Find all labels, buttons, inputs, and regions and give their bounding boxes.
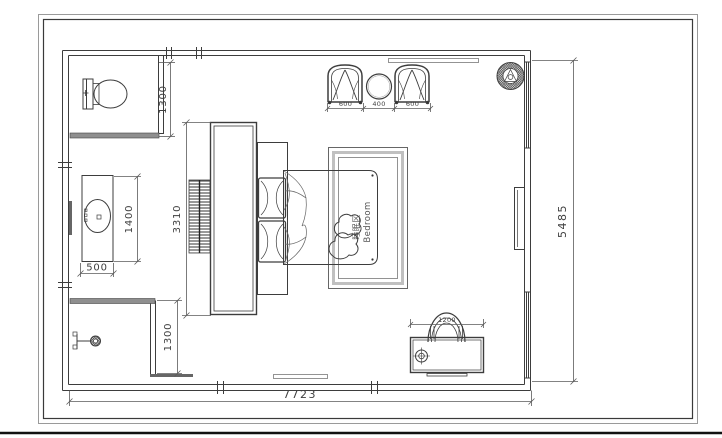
plant	[497, 63, 524, 90]
svg-text:1200: 1200	[438, 316, 456, 324]
svg-text:3310: 3310	[172, 205, 183, 234]
left-wall-pier	[69, 201, 72, 235]
armchair-right	[395, 65, 429, 104]
wardrobe	[211, 123, 257, 315]
shower-partition	[70, 299, 193, 378]
svg-text:7723: 7723	[283, 388, 317, 401]
floor-plan-drawing: 睡眠区 Bedroom	[0, 0, 722, 438]
dim-overall-depth: 5485	[532, 58, 578, 385]
wc-partition	[70, 56, 164, 139]
side-table	[367, 74, 392, 99]
wall-shelf	[389, 59, 479, 63]
svg-text:400: 400	[372, 100, 385, 108]
dim-wc-depth: 1300	[158, 60, 175, 140]
hanging-rod	[189, 180, 210, 253]
svg-text:1300: 1300	[158, 85, 169, 114]
svg-text:500: 500	[86, 263, 108, 274]
floor-plan-canvas: 睡眠区 Bedroom	[0, 0, 722, 438]
svg-text:1400: 1400	[124, 205, 135, 234]
toilet	[83, 79, 128, 109]
svg-text:600: 600	[406, 100, 419, 108]
dim-vanity-depth: 500	[78, 263, 117, 278]
svg-text:1300: 1300	[163, 323, 174, 352]
dim-vanity-length: 1400	[114, 174, 141, 265]
armchair-left	[328, 65, 362, 104]
pillow	[259, 221, 286, 262]
dim-armchairs: 600 400 600	[325, 100, 433, 112]
pillow	[259, 178, 286, 218]
svg-text:600: 600	[339, 100, 352, 108]
room-label-cn: 睡眠区	[352, 214, 361, 240]
door-threshold	[274, 375, 328, 379]
dim-shower-depth: 1300	[157, 298, 182, 377]
bed: 睡眠区 Bedroom	[258, 143, 378, 295]
svg-text:5485: 5485	[556, 204, 569, 238]
room-label-en: Bedroom	[363, 201, 373, 242]
vanity-sink	[82, 176, 113, 262]
dim-desk-length: 1200	[408, 316, 486, 328]
shower-head	[73, 332, 101, 349]
right-wall-windows	[515, 51, 531, 391]
